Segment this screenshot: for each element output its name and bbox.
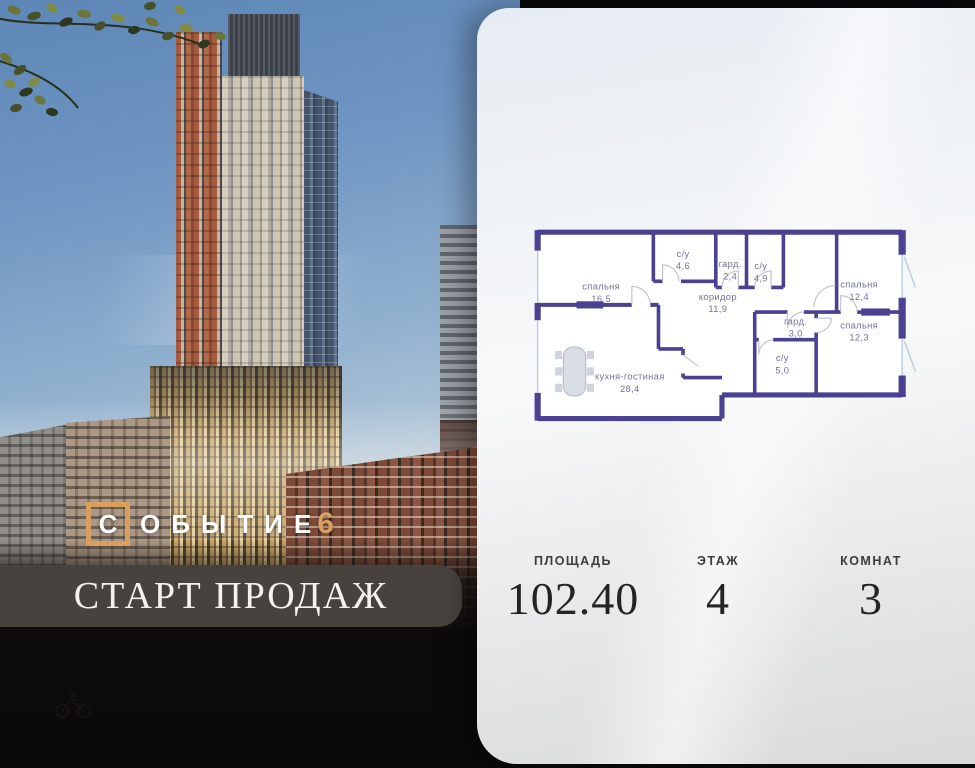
logo-square-letter: С xyxy=(86,502,130,546)
logo-number: 6 xyxy=(317,507,334,541)
room-label: 11,9 xyxy=(708,303,727,314)
room-label: 12,3 xyxy=(849,332,869,343)
stat-area-label: ПЛОЩАДЬ xyxy=(477,554,669,568)
stat-floor-label: ЭТАЖ xyxy=(669,554,767,568)
room-label: 16,5 xyxy=(591,293,611,304)
info-panel: спальня16,5с/у4,6гард.2,4с/у4,9коридор11… xyxy=(477,8,975,764)
project-logo: С ОБЫТИЕ 6 xyxy=(86,502,334,546)
room-label: спальня xyxy=(840,319,878,330)
cyclist-silhouette xyxy=(52,690,98,720)
stat-rooms-value: 3 xyxy=(767,572,975,625)
room-label: 5,0 xyxy=(775,364,789,375)
open-window-sashes xyxy=(904,257,915,372)
room-label: спальня xyxy=(840,278,878,289)
stat-rooms: КОМНАТ 3 xyxy=(767,554,975,625)
room-label: 2,4 xyxy=(723,270,737,281)
room-label: гард. xyxy=(784,315,807,326)
sales-banner-text: СТАРТ ПРОДАЖ xyxy=(74,574,388,618)
room-label: 28,4 xyxy=(620,383,640,394)
building-photo: С ОБЫТИЕ 6 СТАРТ ПРОДАЖ xyxy=(0,0,520,768)
room-label: 4,9 xyxy=(754,272,768,283)
stat-area-value: 102.40 xyxy=(477,572,669,625)
room-label: 4,6 xyxy=(676,260,690,271)
room-label: с/у xyxy=(776,352,789,363)
stat-floor-value: 4 xyxy=(669,572,767,625)
real-estate-poster: С ОБЫТИЕ 6 СТАРТ ПРОДАЖ xyxy=(0,0,975,768)
room-label: с/у xyxy=(677,248,690,259)
room-label: гард. xyxy=(719,258,742,269)
room-label: спальня xyxy=(582,281,620,292)
room-label: 12,4 xyxy=(849,291,869,302)
room-label: кухня-гостиная xyxy=(595,371,665,382)
floor-plan: спальня16,5с/у4,6гард.2,4с/у4,9коридор11… xyxy=(529,224,919,439)
room-label: коридор xyxy=(699,291,737,302)
radiator xyxy=(861,308,890,315)
sales-banner: СТАРТ ПРОДАЖ xyxy=(0,565,462,627)
tree-branch xyxy=(0,0,300,140)
stat-floor: ЭТАЖ 4 xyxy=(669,554,767,625)
room-label: с/у xyxy=(754,260,767,271)
dining-table xyxy=(555,347,594,396)
stat-rooms-label: КОМНАТ xyxy=(767,554,975,568)
leaves xyxy=(0,1,227,117)
stat-area: ПЛОЩАДЬ 102.40 xyxy=(477,554,669,625)
room-label: 3,0 xyxy=(789,328,803,339)
apartment-stats: ПЛОЩАДЬ 102.40 ЭТАЖ 4 КОМНАТ 3 xyxy=(477,554,975,625)
logo-text: ОБЫТИЕ xyxy=(140,509,322,540)
